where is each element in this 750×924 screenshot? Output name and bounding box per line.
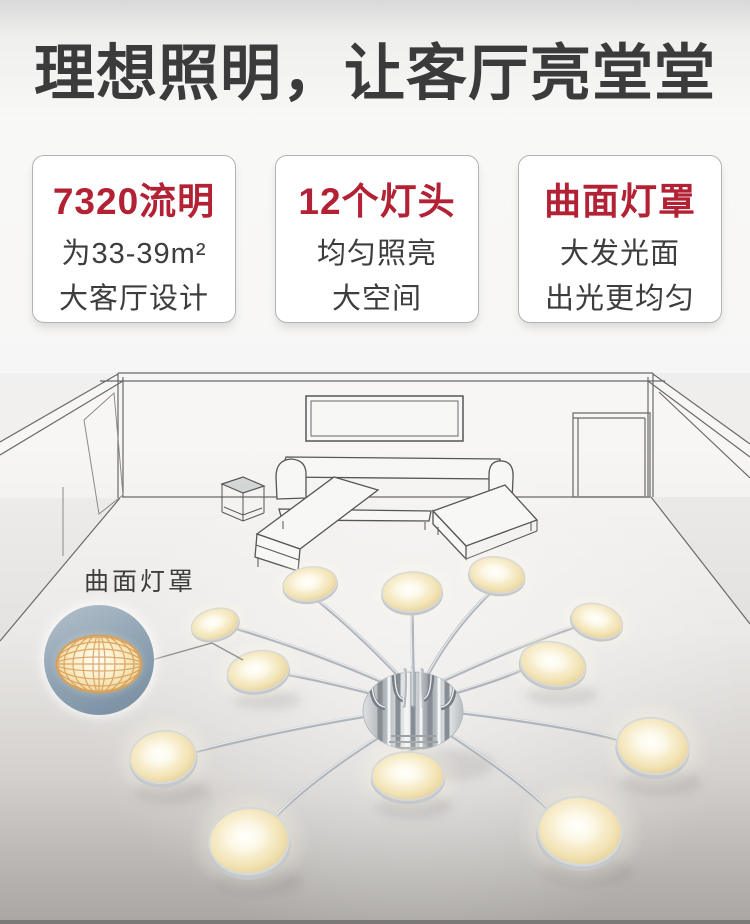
marketing-page: 理想照明，让客厅亮堂堂 7320流明 为33-39m² 大客厅设计 12个灯头 … xyxy=(0,0,750,924)
room-and-lamp-illustration xyxy=(0,0,750,924)
door-outline xyxy=(573,413,650,497)
bottom-divider xyxy=(0,920,750,924)
tv-outline xyxy=(306,396,463,441)
lampshade-mesh xyxy=(56,635,142,693)
lamp-head xyxy=(353,736,463,815)
callout-label: 曲面灯罩 xyxy=(84,562,196,598)
